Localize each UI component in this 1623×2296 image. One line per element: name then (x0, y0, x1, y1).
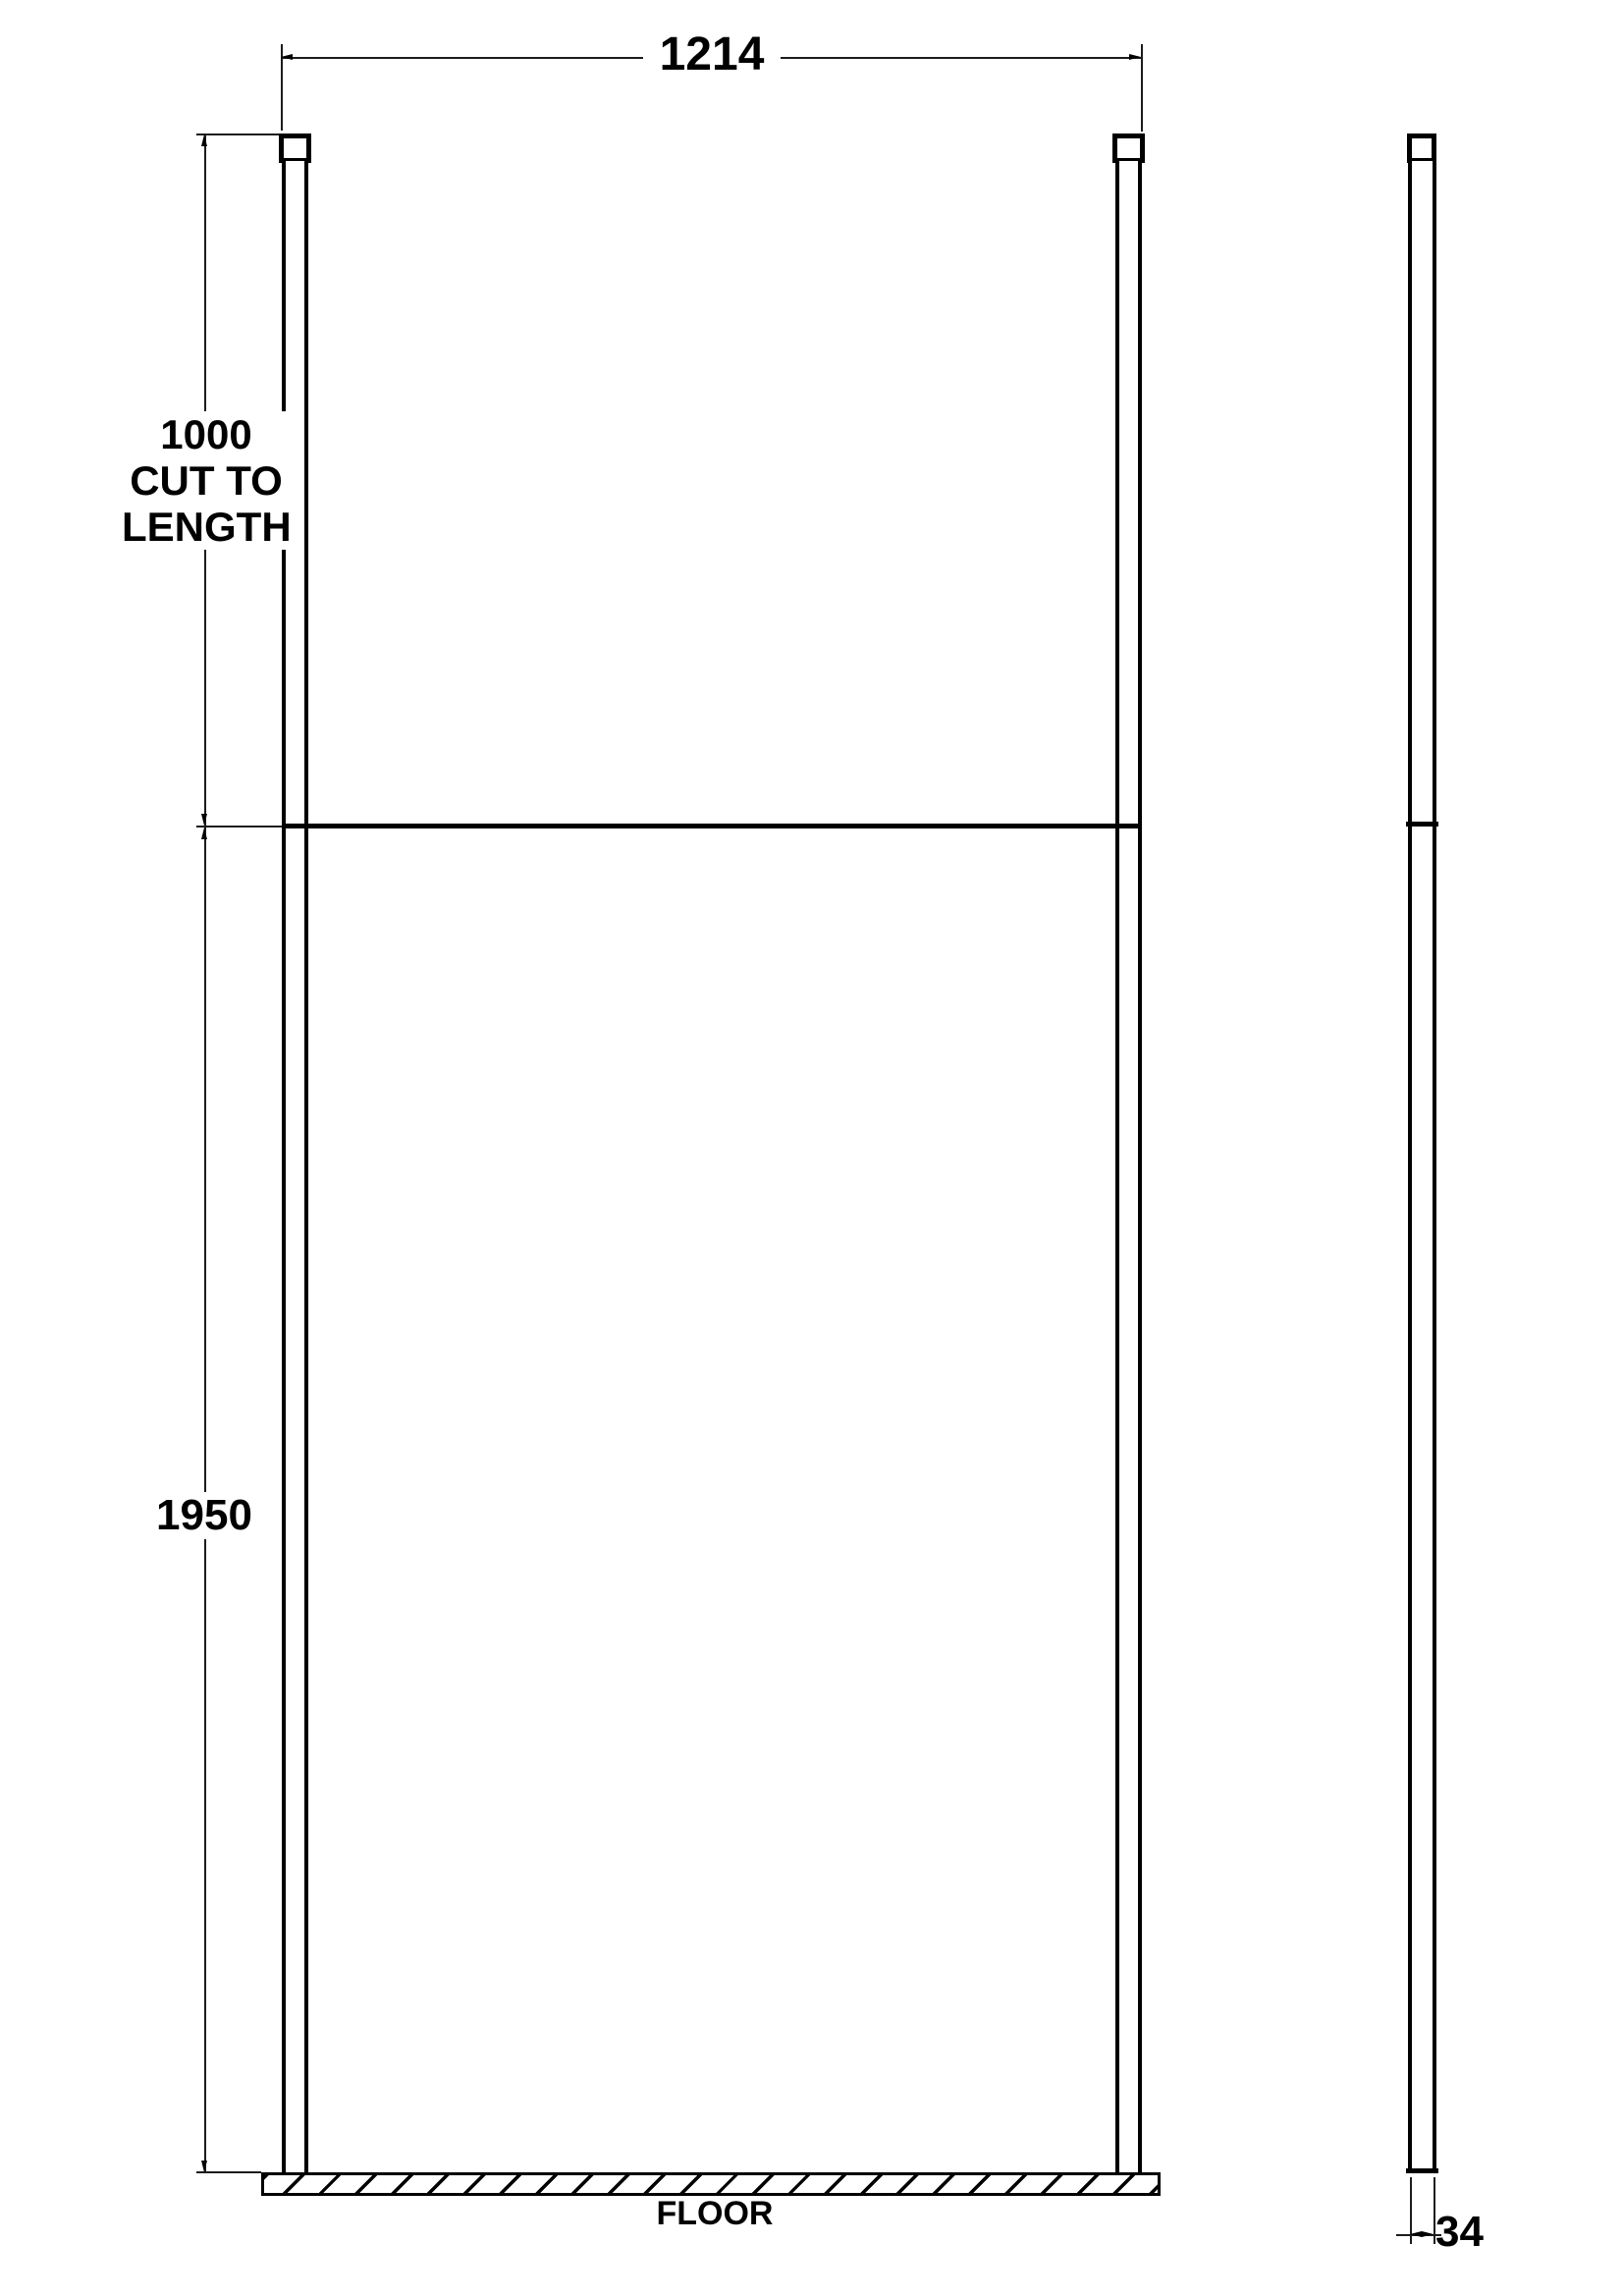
left-ceiling-bracket (279, 133, 311, 163)
extension-tick-cap-top (196, 133, 279, 135)
panel-height-dimension-label: 1950 (135, 1492, 273, 1539)
side-bottom-edge (1406, 2168, 1438, 2173)
floor-slab (261, 2172, 1161, 2196)
technical-drawing: 1214 FLOOR 1000 CUT TO LENGTH 1950 (0, 0, 1623, 2296)
side-ceiling-bracket (1407, 133, 1436, 163)
arrow-down-icon (201, 2161, 207, 2172)
right-ceiling-bracket (1112, 133, 1145, 163)
depth-dimension-label: 34 (1435, 2209, 1498, 2256)
right-support-post (1115, 161, 1142, 2172)
arrow-up-icon (201, 828, 207, 839)
arrow-left-icon (281, 54, 293, 60)
panel-top-edge (282, 824, 1142, 828)
post-dimension-note-1: CUT TO (122, 457, 291, 504)
post-dimension-note-2: LENGTH (122, 504, 291, 550)
extension-line-top-right (1141, 44, 1143, 132)
side-profile (1408, 161, 1436, 2172)
width-dimension-label: 1214 (643, 29, 781, 81)
floor-label: FLOOR (646, 2196, 784, 2232)
arrow-down-icon (201, 814, 207, 826)
post-dimension-label: 1000 CUT TO LENGTH (122, 411, 291, 550)
arrow-left-icon (1410, 2231, 1422, 2237)
arrow-up-icon (201, 134, 207, 146)
arrow-right-icon (1422, 2231, 1434, 2237)
extension-tick-panel-top (196, 826, 282, 828)
post-dimension-value: 1000 (122, 411, 291, 457)
side-panel-joint (1406, 822, 1438, 827)
arrow-right-icon (1129, 54, 1141, 60)
